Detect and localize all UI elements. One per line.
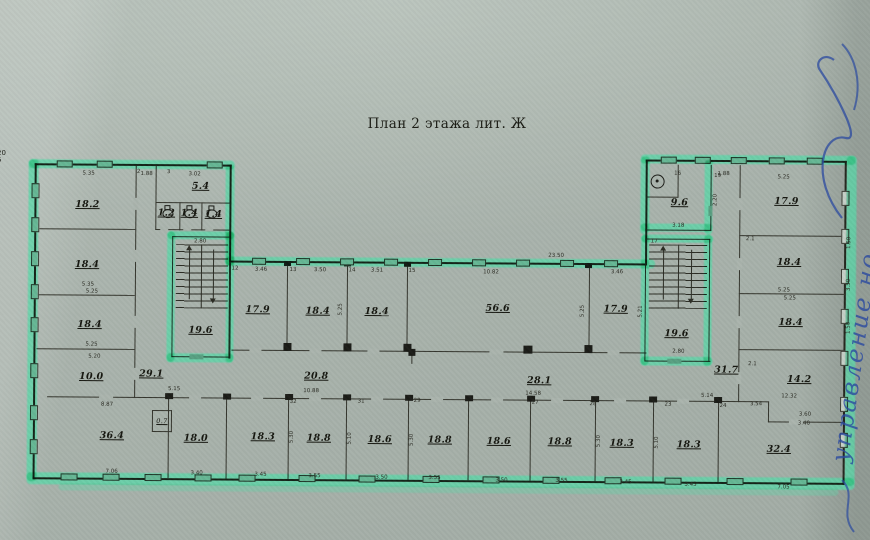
wall-pier (584, 345, 592, 353)
room-index-marker: 15 (408, 268, 415, 274)
dimension-label: 3.18 (672, 223, 684, 229)
dimension-label: 3.45 (254, 472, 266, 478)
edge-note-line2: 5 (0, 156, 1, 164)
room-index-marker: 16 (674, 171, 681, 177)
wall-pier (343, 343, 351, 351)
dimension-label: 5.30 (409, 434, 415, 446)
dimension-label: 3.54 (750, 401, 762, 407)
highlighter-stroke (27, 159, 39, 481)
dimension-label: 5.25 (85, 342, 97, 348)
door-opening (132, 368, 137, 380)
room-area-label: 1.4 (181, 208, 199, 219)
door-opening (309, 396, 321, 401)
door-opening (489, 349, 503, 354)
door-opening (133, 316, 138, 328)
dimension-label: 23.50 (548, 253, 564, 259)
door-opening (249, 348, 261, 353)
door-opening (309, 348, 321, 353)
door-opening (160, 227, 168, 231)
room-area-label: 1.2 (158, 208, 176, 219)
door-opening (99, 395, 113, 400)
dimension-label: 3.02 (189, 171, 201, 177)
room-area-label: 0.7 (156, 417, 167, 425)
dimension-label: 2.1 (748, 361, 757, 367)
handwriting-tail-stroke (834, 478, 868, 538)
room-area-label: 18.3 (610, 438, 634, 449)
room-index-marker: 32 (290, 399, 297, 405)
room-area-label: 18.3 (251, 431, 275, 442)
dimension-label: 3.50 (495, 477, 507, 483)
door-opening (551, 398, 563, 403)
room-area-label: 18.4 (778, 317, 802, 328)
room-index-marker: 29 (414, 398, 421, 404)
room-area-label: 10.0 (79, 371, 103, 382)
dimension-label: 14.58 (525, 391, 541, 397)
dimension-label: 5.10 (347, 432, 353, 444)
inner-wall (286, 263, 288, 350)
floor-plan-drawing: 18.218.418.410.05.41.21.41.419.629.117.9… (0, 0, 870, 540)
dimension-label: 3.60 (799, 412, 811, 418)
dimension-label: 3.50 (375, 475, 387, 481)
dimension-label: 3.51 (371, 268, 383, 274)
room-area-label: 20.8 (304, 371, 328, 382)
dimension-label: 3.46 (255, 267, 267, 273)
inner-wall (588, 265, 590, 352)
highlighter-stroke (640, 234, 649, 365)
wall-pier (223, 394, 231, 400)
dimension-label: 3.45 (684, 482, 696, 488)
highlighter-stroke (29, 159, 235, 169)
room-area-label: 18.2 (75, 199, 99, 210)
highlighter-stroke (166, 231, 175, 362)
room-area-label: 31.7 (714, 364, 738, 375)
room-area-label: 17.9 (246, 304, 270, 315)
dimension-label: 5.25 (784, 295, 796, 301)
room-index-marker: 19 (714, 173, 721, 179)
room-index-marker: 2 (137, 169, 141, 175)
room-area-label: 36.4 (100, 430, 124, 441)
room-index-marker: 27 (532, 400, 539, 406)
dimension-label: 5.25 (338, 303, 344, 315)
inner-wall (738, 349, 844, 351)
dimension-label: 3.55 (428, 475, 440, 481)
inner-wall (406, 264, 408, 351)
room-area-label: 18.8 (307, 433, 331, 444)
dimension-label: 2.80 (194, 238, 206, 244)
dimension-label: 3.55 (555, 478, 567, 484)
wall-pier (405, 395, 413, 401)
room-area-label: 18.4 (364, 306, 388, 317)
dimension-label: 5.10 (654, 436, 660, 448)
dimension-label: 5.15 (168, 386, 180, 392)
room-area-label: 56.6 (486, 303, 510, 314)
room-index-marker: 28 (590, 401, 597, 407)
room-index-marker: 14 (348, 267, 355, 273)
room-index-marker: 24 (720, 403, 727, 409)
room-index-marker: 12 (231, 266, 238, 272)
dimension-label: 2.1 (746, 236, 755, 242)
wall-pier (283, 343, 291, 351)
dimension-label: 8.87 (101, 402, 113, 408)
room-area-label: 32.4 (767, 444, 791, 455)
dimension-label: 3.55 (308, 473, 320, 479)
inner-wall (678, 165, 679, 198)
highlighter-stroke (225, 232, 234, 363)
room-area-label: 18.4 (305, 306, 329, 317)
room-area-label: 18.0 (184, 433, 208, 444)
dimension-label: 5.25 (86, 289, 98, 295)
wall-pier (649, 396, 657, 402)
inner-wall (468, 399, 470, 480)
dimension-label: 7.06 (105, 469, 117, 475)
signature-flourish (762, 36, 870, 236)
dimension-label: 5.25 (580, 305, 586, 317)
scanned-floor-plan-page: План 2 этажа лит. Ж 20 5 18.218.418.410.… (0, 0, 870, 540)
door-opening (133, 250, 138, 262)
inner-wall (718, 401, 720, 482)
room-area-label: 18.8 (548, 436, 572, 447)
room-index-marker: 17 (651, 239, 658, 245)
highlighter-stroke (640, 356, 712, 366)
room-area-label: 9.6 (671, 197, 689, 208)
dimension-label: 7.05 (777, 484, 789, 490)
inner-wall (155, 166, 156, 230)
door-opening (607, 350, 619, 355)
room-index-marker: 13 (289, 267, 296, 273)
wall-pier (408, 349, 415, 356)
plan-title: План 2 этажа лит. Ж (352, 116, 542, 132)
room-area-label: 17.9 (604, 304, 628, 315)
room-area-label: 18.3 (677, 439, 701, 450)
room-area-label: 28.1 (527, 375, 551, 386)
room-index-marker: 23 (665, 402, 672, 408)
dimension-label: 1.50 (846, 237, 852, 249)
dimension-label: 1.88 (141, 171, 153, 177)
wall-pier (465, 395, 473, 401)
dimension-label: 5.14 (701, 393, 713, 399)
dimension-label: 5.30 (596, 435, 602, 447)
dimension-label: 5.35 (82, 282, 94, 288)
dimension-label: 3.46 (611, 269, 623, 275)
dimension-label: 5.21 (638, 305, 644, 317)
door-opening (614, 398, 626, 403)
dimension-label: 10.88 (303, 388, 319, 394)
door-opening (737, 258, 742, 270)
inner-wall (530, 400, 532, 481)
room-area-label: 18.4 (77, 319, 101, 330)
room-area-label: 18.4 (777, 257, 801, 268)
door-opening (133, 198, 138, 210)
highlighter-stroke (166, 353, 233, 362)
dimension-label: 5.25 (778, 287, 790, 293)
inner-wall (768, 401, 769, 422)
door-opening (491, 397, 503, 402)
inner-wall (171, 410, 172, 432)
wall-pier (165, 393, 173, 399)
room-area-label: 1.4 (205, 209, 223, 220)
wall-pier (343, 394, 351, 400)
inner-wall (36, 348, 134, 350)
door-opening (251, 396, 263, 401)
inner-wall (346, 263, 348, 350)
door-opening (371, 397, 383, 402)
room-area-label: 14.2 (787, 374, 811, 385)
room-area-label: 18.8 (428, 434, 452, 445)
door-opening (737, 198, 742, 210)
dimension-label: 2.20 (712, 194, 718, 206)
dimension-label: 3.40 (190, 470, 202, 476)
room-area-label: 5.4 (192, 181, 210, 192)
highlighter-stroke (703, 235, 712, 366)
dimension-label: 5.20 (88, 354, 100, 360)
dimension-label: 3.45 (619, 479, 631, 485)
door-opening (737, 316, 742, 328)
room-area-label: 18.6 (487, 436, 511, 447)
washbasin-icon (651, 175, 665, 189)
inner-wall (152, 431, 172, 432)
inner-wall (155, 202, 230, 204)
room-area-label: 18.4 (75, 259, 99, 270)
dimension-label: 2.80 (672, 349, 684, 355)
dimension-label: 3.40 (798, 421, 810, 427)
room-index-marker: 31 (358, 398, 365, 404)
door-opening (189, 395, 201, 400)
left-edge-note: 20 5 (0, 150, 6, 164)
room-area-label: 18.6 (368, 434, 392, 445)
room-area-label: 29.1 (139, 368, 163, 379)
inner-wall (226, 398, 228, 479)
inner-wall (201, 202, 202, 230)
room-area-label: 19.6 (664, 328, 688, 339)
dimension-label: 3.50 (314, 267, 326, 273)
room-area-label: 19.6 (188, 325, 212, 336)
room-index-marker: 3 (167, 169, 171, 175)
dimension-label: 12.32 (781, 393, 797, 399)
dimension-label: 5.30 (289, 431, 295, 443)
door-opening (677, 399, 689, 404)
wall-pier (523, 346, 532, 354)
inner-wall (152, 410, 172, 411)
dimension-label: 5.35 (83, 171, 95, 177)
inner-wall (37, 228, 135, 230)
dimension-label: 10.82 (483, 269, 499, 275)
door-opening (367, 349, 379, 354)
inner-wall (152, 410, 153, 432)
door-opening (431, 397, 443, 402)
